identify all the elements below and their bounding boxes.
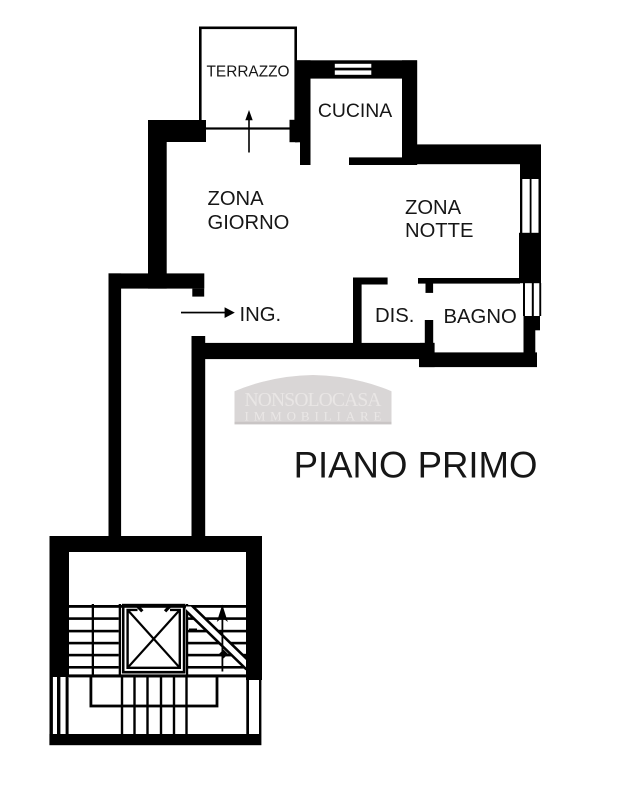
svg-text:PIANO PRIMO: PIANO PRIMO — [294, 444, 538, 485]
svg-text:TERRAZZO: TERRAZZO — [207, 64, 290, 81]
svg-text:CUCINA: CUCINA — [318, 100, 392, 122]
svg-text:GIORNO: GIORNO — [208, 212, 290, 234]
svg-text:DIS.: DIS. — [375, 305, 414, 327]
svg-text:ING.: ING. — [240, 304, 282, 326]
svg-text:ZONA: ZONA — [405, 197, 462, 219]
svg-text:BAGNO: BAGNO — [444, 306, 517, 328]
svg-text:ZONA: ZONA — [208, 188, 265, 210]
svg-text:NOTTE: NOTTE — [405, 220, 473, 242]
